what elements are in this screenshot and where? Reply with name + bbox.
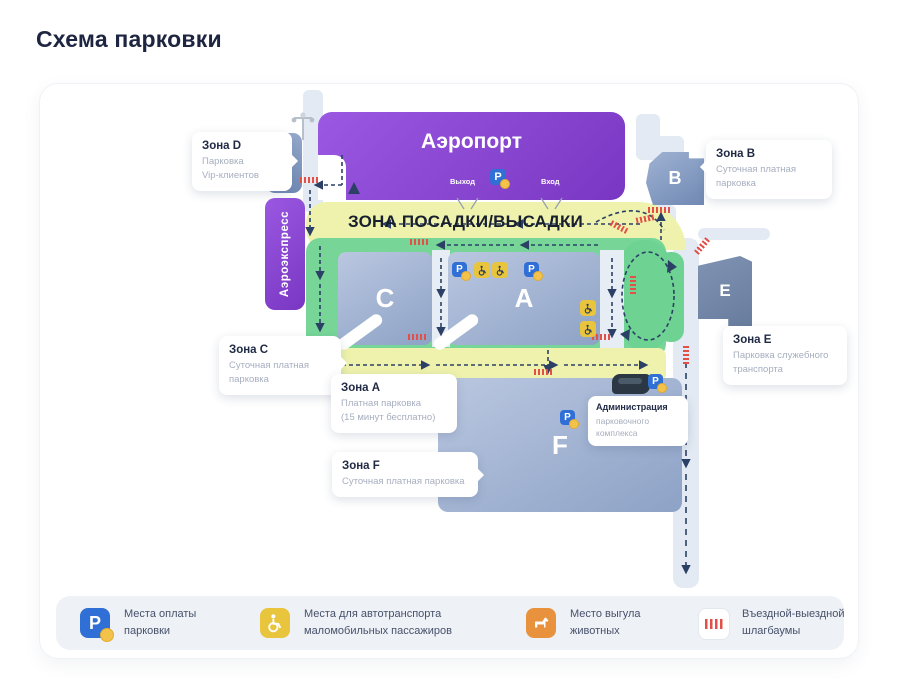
street-lamp-icon bbox=[288, 110, 318, 144]
legend-item-dog: Место выгула животных bbox=[570, 606, 641, 639]
legend-item-barrier: Въездной-выездной шлагбаумы bbox=[742, 606, 845, 639]
zone-card-e: Зона E Парковка служебного транспорта bbox=[723, 326, 847, 385]
coin-badge bbox=[461, 271, 471, 281]
wheelchair-icon bbox=[580, 300, 596, 316]
legend-text: Место выгула bbox=[570, 606, 641, 623]
wheelchair-icon bbox=[492, 262, 508, 278]
barrier-icon bbox=[410, 239, 428, 245]
dog-walking-icon bbox=[526, 608, 556, 638]
parking-payment-icon: P bbox=[648, 374, 663, 389]
building-b-letter: B bbox=[669, 168, 682, 189]
building-b: B bbox=[646, 152, 704, 205]
parking-payment-icon: P bbox=[490, 169, 506, 185]
airport-building bbox=[318, 112, 625, 200]
zone-card-b: Зона B Суточная платная парковка bbox=[706, 140, 832, 199]
parking-payment-icon: P bbox=[452, 262, 467, 277]
airport-entrance-label: Вход bbox=[541, 177, 560, 186]
aeroexpress-building: Аэроэкспресс bbox=[265, 198, 305, 310]
zone-card-admin: Администрация парковочного комплекса bbox=[588, 396, 688, 446]
admin-building-window bbox=[618, 378, 642, 384]
barrier-icon bbox=[683, 346, 689, 364]
dropoff-zone-label: ЗОНА ПОСАДКИ/ВЫСАДКИ bbox=[348, 212, 583, 232]
airport-notch bbox=[318, 155, 346, 200]
zone-desc: парковка bbox=[716, 177, 822, 191]
zone-desc: Парковка служебного bbox=[733, 349, 837, 363]
p-letter: P bbox=[89, 613, 101, 634]
zone-desc: Платная парковка bbox=[341, 397, 447, 411]
barrier-icon bbox=[698, 608, 730, 640]
zone-card-c: Зона C Суточная платная парковка bbox=[219, 336, 341, 395]
airport-exit-label: Выход bbox=[450, 177, 475, 186]
wheelchair-icon bbox=[580, 321, 596, 337]
zone-desc: Суточная платная bbox=[716, 163, 822, 177]
admin-building bbox=[612, 374, 650, 394]
lot-a-letter: A bbox=[515, 283, 534, 314]
lot-c-letter: C bbox=[376, 283, 395, 314]
wheelchair-icon bbox=[260, 608, 290, 638]
lot-f-letter: F bbox=[552, 430, 568, 461]
coin-badge bbox=[533, 271, 543, 281]
legend-text: Места для автотранспорта bbox=[304, 606, 452, 623]
building-e: E bbox=[698, 256, 752, 326]
zone-desc: Суточная платная парковка bbox=[342, 475, 468, 489]
roundabout-island-2 bbox=[658, 252, 684, 342]
zone-title: Зона B bbox=[716, 148, 822, 160]
airport-label: Аэропорт bbox=[318, 130, 625, 154]
building-e-letter: E bbox=[719, 281, 730, 301]
coin-badge bbox=[569, 419, 579, 429]
coin-badge bbox=[100, 628, 114, 642]
zone-title: Зона D bbox=[202, 140, 282, 152]
zone-desc: парковка bbox=[229, 373, 331, 387]
barrier-icon bbox=[534, 369, 552, 375]
legend-text: парковки bbox=[124, 623, 196, 640]
zone-card-d: Зона D Парковка Vip-клиентов bbox=[192, 132, 292, 191]
legend-text: маломобильных пассажиров bbox=[304, 623, 452, 640]
wheelchair-icon bbox=[474, 262, 490, 278]
parking-payment-icon: P bbox=[524, 262, 539, 277]
coin-badge bbox=[657, 383, 667, 393]
parking-payment-icon: P bbox=[560, 410, 575, 425]
zone-desc: транспорта bbox=[733, 363, 837, 377]
aeroexpress-label: Аэроэкспресс bbox=[279, 211, 291, 297]
barrier-icon bbox=[300, 177, 318, 183]
legend-item-accessible: Места для автотранспорта маломобильных п… bbox=[304, 606, 452, 639]
zone-desc: Vip-клиентов bbox=[202, 169, 282, 183]
zone-title: Зона A bbox=[341, 382, 447, 394]
zone-desc: (15 минут бесплатно) bbox=[341, 411, 447, 425]
coin-badge bbox=[500, 179, 510, 189]
zone-desc: комплекса bbox=[596, 427, 680, 439]
page-title: Схема парковки bbox=[36, 26, 222, 53]
barrier-dashes bbox=[705, 619, 723, 629]
zone-title: Зона C bbox=[229, 344, 331, 356]
barrier-icon bbox=[630, 276, 636, 294]
zone-desc: Суточная платная bbox=[229, 359, 331, 373]
zone-desc: парковочного bbox=[596, 415, 680, 427]
zone-desc: Парковка bbox=[202, 155, 282, 169]
legend-text: шлагбаумы bbox=[742, 623, 845, 640]
parking-payment-icon: P bbox=[80, 608, 110, 638]
legend-item-payment: Места оплаты парковки bbox=[124, 606, 196, 639]
legend-text: Места оплаты bbox=[124, 606, 196, 623]
zone-card-f: Зона F Суточная платная парковка bbox=[332, 452, 478, 497]
zone-title: Зона F bbox=[342, 460, 468, 472]
zone-card-a: Зона A Платная парковка (15 минут беспла… bbox=[331, 374, 457, 433]
legend-text: животных bbox=[570, 623, 641, 640]
barrier-icon bbox=[408, 334, 426, 340]
legend-text: Въездной-выездной bbox=[742, 606, 845, 623]
zone-title: Зона E bbox=[733, 334, 837, 346]
zone-title: Администрация bbox=[596, 402, 680, 412]
barrier-icon bbox=[648, 207, 672, 213]
road-to-e bbox=[698, 228, 770, 240]
parking-scheme-page: Схема парковки C A F Аэропорт Выход Вход… bbox=[0, 0, 900, 683]
